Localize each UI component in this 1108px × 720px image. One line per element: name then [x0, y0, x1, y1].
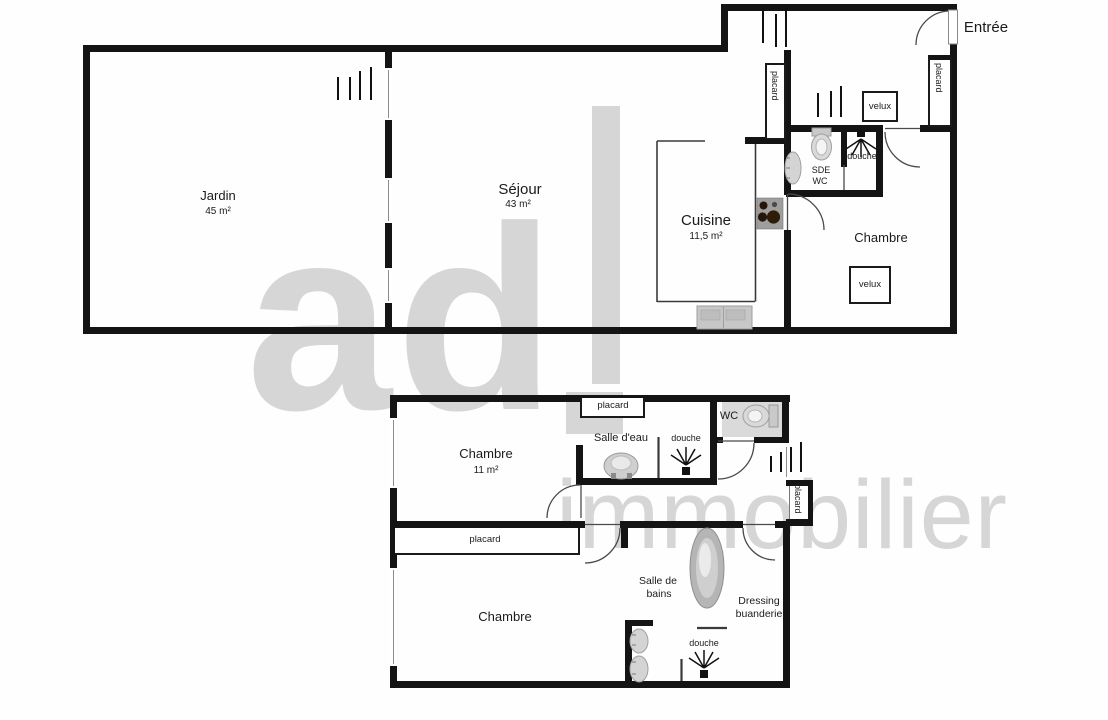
room-name: douche — [671, 433, 701, 444]
floorplan-canvas: ad immobilier — [0, 0, 1108, 720]
room-area: 43 m² — [505, 199, 531, 211]
room-name: bains — [646, 588, 671, 601]
room-area: 11 m² — [474, 465, 499, 477]
room-area: 45 m² — [205, 206, 231, 218]
room-name: Salle de — [639, 575, 677, 588]
room-area: 11,5 m² — [689, 231, 722, 243]
room-name: Chambre — [478, 609, 531, 625]
room-name: Chambre — [459, 446, 512, 462]
room-name: Salle d'eau — [594, 432, 648, 445]
room-name: buanderie — [736, 608, 783, 621]
room-name: Dressing — [738, 595, 779, 608]
entry-label: Entrée — [964, 19, 1008, 37]
room-name: Jardin — [200, 188, 235, 204]
room-name: douche — [847, 151, 877, 162]
room-name: Séjour — [498, 181, 541, 199]
room-name: WC — [813, 176, 828, 187]
labels-layer: Entrée Jardin 45 m² Séjour 43 m² Cuisine… — [0, 0, 1108, 720]
room-name: douche — [689, 638, 719, 649]
room-name: Chambre — [854, 230, 907, 246]
room-name: WC — [720, 410, 738, 423]
room-name: SDE — [812, 165, 831, 176]
room-name: Cuisine — [681, 212, 731, 230]
